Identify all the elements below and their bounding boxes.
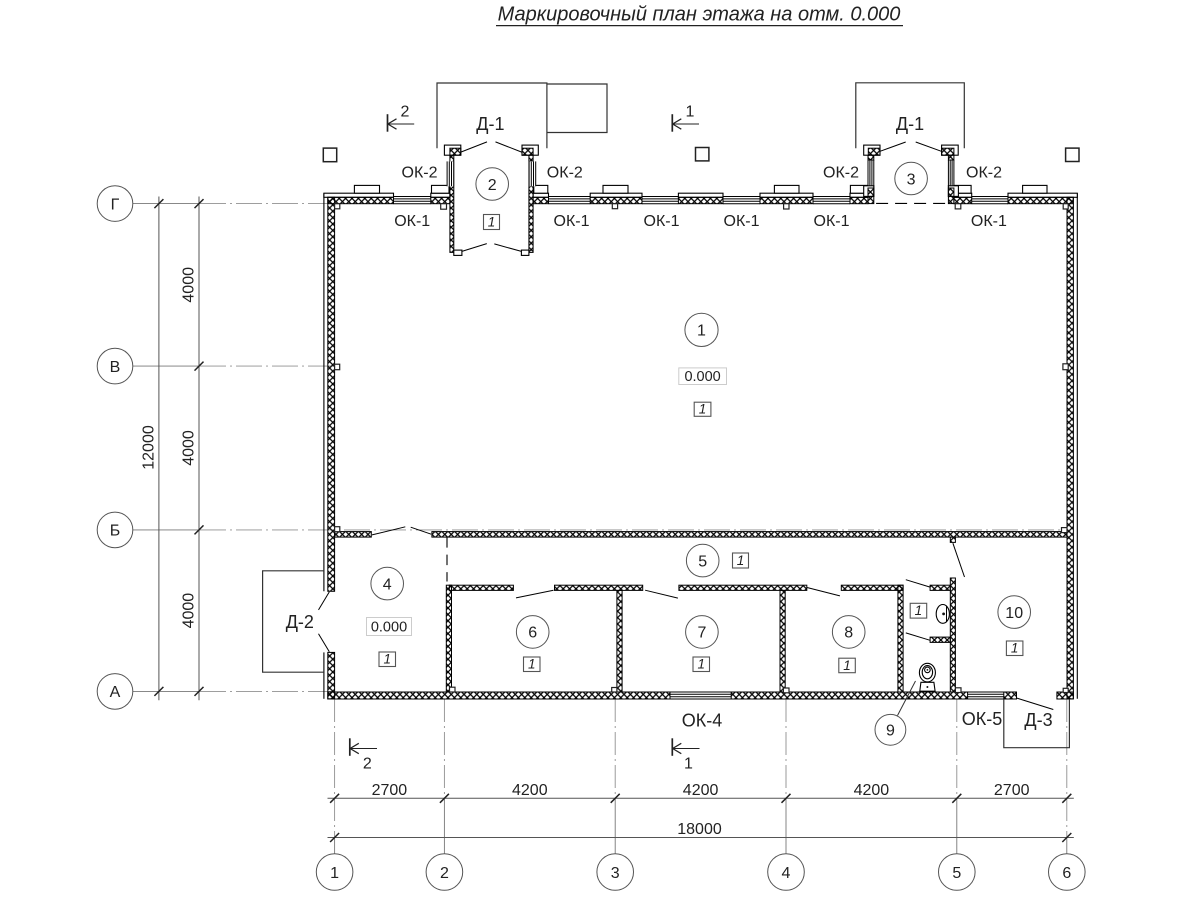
svg-text:1: 1 — [699, 402, 707, 417]
svg-text:5: 5 — [698, 553, 707, 570]
svg-text:Д-3: Д-3 — [1024, 710, 1052, 730]
svg-text:4: 4 — [383, 576, 392, 593]
svg-text:18000: 18000 — [677, 821, 722, 838]
svg-text:ОК-1: ОК-1 — [644, 213, 680, 230]
svg-text:2: 2 — [488, 177, 497, 194]
svg-text:5: 5 — [952, 865, 961, 882]
svg-text:4000: 4000 — [181, 430, 198, 466]
svg-text:4: 4 — [782, 865, 791, 882]
svg-text:ОК-1: ОК-1 — [724, 213, 760, 230]
svg-text:1: 1 — [915, 603, 923, 618]
svg-text:1: 1 — [697, 323, 706, 340]
svg-text:2: 2 — [440, 865, 449, 882]
svg-text:ОК-5: ОК-5 — [962, 709, 1003, 729]
svg-text:2: 2 — [401, 104, 410, 121]
svg-text:3: 3 — [907, 171, 916, 188]
svg-text:4200: 4200 — [854, 782, 890, 799]
svg-text:1: 1 — [1011, 641, 1019, 656]
svg-text:ОК-1: ОК-1 — [394, 213, 430, 230]
svg-text:4000: 4000 — [181, 593, 198, 629]
svg-text:6: 6 — [1062, 865, 1071, 882]
svg-text:ОК-4: ОК-4 — [682, 711, 723, 731]
svg-text:4000: 4000 — [181, 267, 198, 303]
svg-text:1: 1 — [737, 553, 745, 568]
svg-text:ОК-1: ОК-1 — [554, 213, 590, 230]
svg-text:1: 1 — [684, 756, 693, 773]
svg-text:ОК-2: ОК-2 — [823, 165, 859, 182]
svg-text:ОК-1: ОК-1 — [971, 213, 1007, 230]
svg-text:10: 10 — [1005, 605, 1023, 622]
svg-text:А: А — [110, 684, 121, 701]
svg-text:В: В — [110, 359, 121, 376]
svg-text:2: 2 — [363, 756, 372, 773]
svg-text:8: 8 — [844, 625, 853, 642]
svg-text:Д-1: Д-1 — [476, 114, 504, 134]
svg-text:ОК-1: ОК-1 — [814, 213, 850, 230]
svg-text:7: 7 — [697, 625, 706, 642]
svg-text:0.000: 0.000 — [684, 369, 720, 385]
svg-text:4200: 4200 — [683, 782, 719, 799]
svg-text:4200: 4200 — [512, 782, 548, 799]
svg-text:1: 1 — [697, 657, 705, 672]
svg-text:1: 1 — [330, 865, 339, 882]
svg-text:1: 1 — [528, 657, 536, 672]
svg-text:Г: Г — [111, 196, 120, 213]
svg-text:ОК-2: ОК-2 — [547, 165, 583, 182]
svg-text:2700: 2700 — [994, 782, 1030, 799]
svg-text:ОК-2: ОК-2 — [402, 165, 438, 182]
svg-text:0.000: 0.000 — [371, 620, 407, 636]
svg-text:Маркировочный план этажа на от: Маркировочный план этажа на отм. 0.000 — [498, 4, 901, 26]
svg-text:Д-2: Д-2 — [286, 612, 314, 632]
svg-text:1: 1 — [383, 652, 391, 667]
svg-text:1: 1 — [686, 104, 695, 121]
svg-text:12000: 12000 — [141, 425, 158, 470]
svg-text:9: 9 — [886, 723, 895, 740]
svg-text:3: 3 — [611, 865, 620, 882]
svg-text:1: 1 — [843, 658, 851, 673]
svg-text:ОК-2: ОК-2 — [966, 165, 1002, 182]
svg-text:6: 6 — [528, 625, 537, 642]
svg-text:Д-1: Д-1 — [896, 114, 924, 134]
svg-text:2700: 2700 — [372, 782, 408, 799]
svg-text:1: 1 — [488, 215, 496, 230]
svg-text:Б: Б — [110, 523, 121, 540]
